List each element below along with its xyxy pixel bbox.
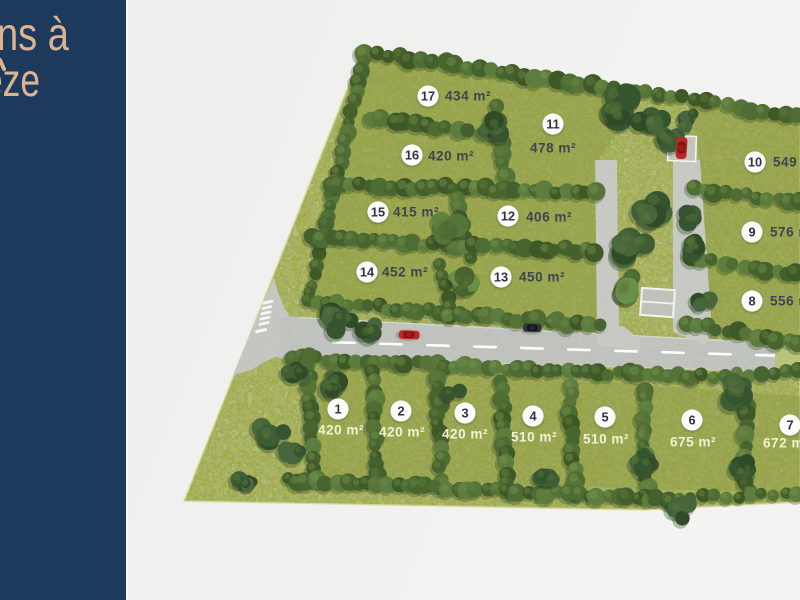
svg-text:ns à: ns à (0, 8, 69, 60)
svg-text:17: 17 (421, 89, 435, 104)
svg-text:11: 11 (546, 117, 560, 132)
svg-text:1: 1 (334, 402, 341, 417)
svg-text:510 m²: 510 m² (583, 432, 629, 447)
svg-text:420 m²: 420 m² (428, 149, 474, 164)
svg-text:415 m²: 415 m² (393, 205, 439, 220)
svg-text:10: 10 (748, 155, 762, 170)
svg-text:3: 3 (461, 406, 468, 421)
svg-text:6: 6 (688, 413, 695, 428)
svg-text:4: 4 (529, 409, 537, 424)
svg-text:452 m²: 452 m² (382, 265, 428, 280)
svg-text:15: 15 (371, 205, 385, 220)
svg-text:675 m²: 675 m² (670, 435, 716, 450)
svg-text:420 m²: 420 m² (379, 425, 425, 440)
svg-text:478 m²: 478 m² (530, 141, 576, 156)
svg-text:556 m²: 556 m² (770, 294, 800, 309)
svg-text:12: 12 (501, 209, 515, 224)
svg-text:9: 9 (748, 225, 755, 240)
svg-text:16: 16 (405, 148, 419, 163)
svg-text:420 m²: 420 m² (318, 423, 364, 438)
svg-text:549 m²: 549 m² (773, 155, 800, 170)
svg-text:450 m²: 450 m² (519, 270, 565, 285)
svg-text:èze: èze (0, 54, 40, 106)
svg-text:672 m²: 672 m² (763, 436, 800, 451)
svg-text:406 m²: 406 m² (526, 210, 572, 225)
svg-text:576 m²: 576 m² (770, 225, 800, 240)
svg-text:8: 8 (748, 294, 755, 309)
svg-text:5: 5 (601, 410, 608, 425)
svg-text:2: 2 (397, 404, 404, 419)
svg-text:7: 7 (786, 418, 793, 433)
svg-text:14: 14 (360, 265, 375, 280)
svg-text:420 m²: 420 m² (442, 427, 488, 442)
svg-text:510 m²: 510 m² (511, 430, 557, 445)
svg-text:434 m²: 434 m² (445, 89, 491, 104)
svg-text:13: 13 (494, 270, 508, 285)
